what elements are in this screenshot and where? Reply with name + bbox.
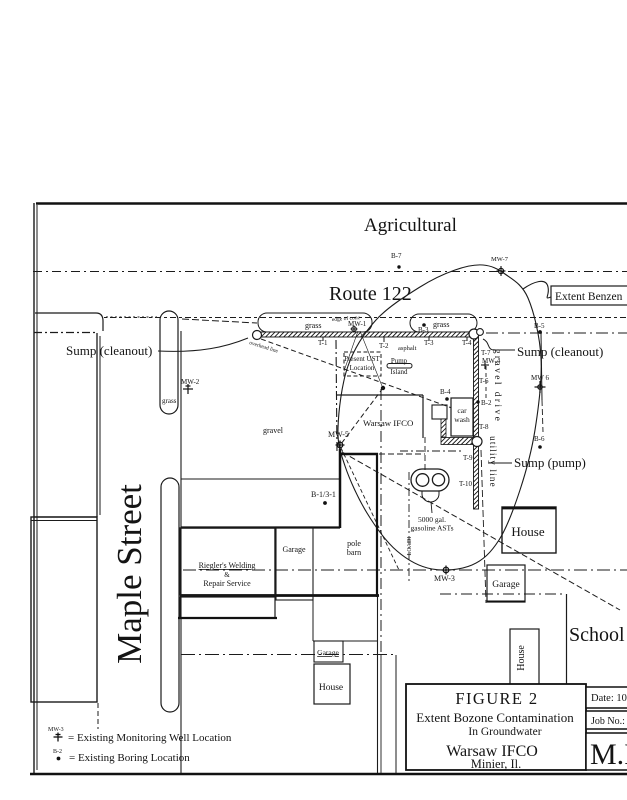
svg-text:House: House — [516, 645, 527, 671]
svg-text:MW-2: MW-2 — [181, 378, 200, 386]
svg-text:grass: grass — [305, 321, 321, 330]
svg-text:B-3: B-3 — [418, 326, 429, 334]
svg-text:Garage: Garage — [282, 545, 306, 554]
svg-text:LOADI: LOADI — [407, 537, 413, 556]
svg-text:B-5: B-5 — [534, 322, 545, 330]
svg-text:car: car — [457, 406, 467, 415]
svg-text:T-3: T-3 — [424, 339, 434, 347]
svg-text:MW-3: MW-3 — [48, 727, 64, 733]
svg-text:Extent Benzen: Extent Benzen — [555, 291, 623, 303]
svg-text:utility line: utility line — [488, 436, 498, 488]
svg-text:House: House — [511, 524, 544, 539]
svg-text:Sump (cleanout): Sump (cleanout) — [66, 343, 152, 358]
svg-text:Garage: Garage — [317, 648, 339, 657]
svg-text:Sump (cleanout): Sump (cleanout) — [517, 344, 603, 359]
svg-text:Extent Bozone Contamination: Extent Bozone Contamination — [416, 710, 574, 725]
svg-text:Repair Service: Repair Service — [203, 579, 251, 588]
svg-text:Island: Island — [390, 368, 408, 376]
svg-text:MW-3: MW-3 — [434, 574, 455, 583]
svg-text:Minier, Il.: Minier, Il. — [471, 757, 522, 771]
svg-text:Riegler's Welding: Riegler's Welding — [199, 561, 256, 570]
svg-text:B-1/3-1: B-1/3-1 — [311, 490, 336, 499]
svg-text:Location: Location — [350, 364, 375, 372]
svg-text:= Existing Monitoring Well Loc: = Existing Monitoring Well Location — [68, 732, 232, 744]
svg-text:Garage: Garage — [492, 580, 519, 590]
svg-text:= Existing Boring Location: = Existing Boring Location — [69, 752, 190, 764]
svg-text:B-4: B-4 — [440, 388, 451, 396]
svg-text:MW-7: MW-7 — [491, 256, 509, 263]
svg-text:T-6: T-6 — [479, 377, 489, 385]
svg-text:Route 122: Route 122 — [329, 283, 412, 305]
svg-text:T-9: T-9 — [463, 454, 473, 462]
svg-text:barn: barn — [347, 548, 361, 557]
svg-text:gasoline ASTs: gasoline ASTs — [410, 524, 453, 533]
svg-text:Sump (pump): Sump (pump) — [514, 455, 586, 470]
svg-text:gravel: gravel — [263, 426, 284, 435]
svg-text:MW-1: MW-1 — [348, 320, 367, 328]
svg-text:FIGURE 2: FIGURE 2 — [455, 689, 538, 708]
svg-text:wash: wash — [454, 415, 470, 424]
svg-text:pole: pole — [347, 539, 361, 548]
svg-text:House: House — [319, 683, 343, 693]
svg-text:Date: 10: Date: 10 — [591, 693, 627, 704]
svg-text:B-7: B-7 — [391, 252, 402, 260]
svg-text:Agricultural: Agricultural — [364, 215, 457, 236]
svg-text:Maple Street: Maple Street — [110, 484, 149, 664]
svg-text:MW 6: MW 6 — [531, 374, 549, 382]
svg-text:grass: grass — [433, 320, 449, 329]
svg-text:asphalt: asphalt — [398, 345, 417, 352]
svg-text:B-2: B-2 — [53, 749, 62, 755]
svg-text:School: School — [569, 624, 625, 646]
svg-text:T-10: T-10 — [459, 480, 472, 488]
svg-text:&: & — [224, 571, 230, 579]
svg-text:T-4: T-4 — [462, 339, 472, 347]
svg-text:Pump: Pump — [391, 357, 408, 365]
svg-text:B-2: B-2 — [481, 399, 492, 407]
svg-text:Job No.:: Job No.: — [591, 716, 625, 727]
svg-text:In Groundwater: In Groundwater — [468, 726, 541, 738]
svg-text:Warsaw IFCO: Warsaw IFCO — [363, 418, 413, 428]
svg-text:T-1: T-1 — [318, 339, 328, 347]
svg-text:B-6: B-6 — [534, 435, 545, 443]
svg-text:Present UST: Present UST — [344, 355, 380, 363]
svg-text:gravel drive: gravel drive — [492, 349, 502, 423]
svg-text:T-7: T-7 — [481, 349, 491, 357]
svg-text:MW-5: MW-5 — [328, 430, 349, 439]
svg-text:T-8: T-8 — [479, 423, 489, 431]
svg-text:T-2: T-2 — [379, 342, 389, 350]
svg-text:grass: grass — [162, 397, 177, 405]
svg-text:M.I: M.I — [590, 738, 627, 771]
